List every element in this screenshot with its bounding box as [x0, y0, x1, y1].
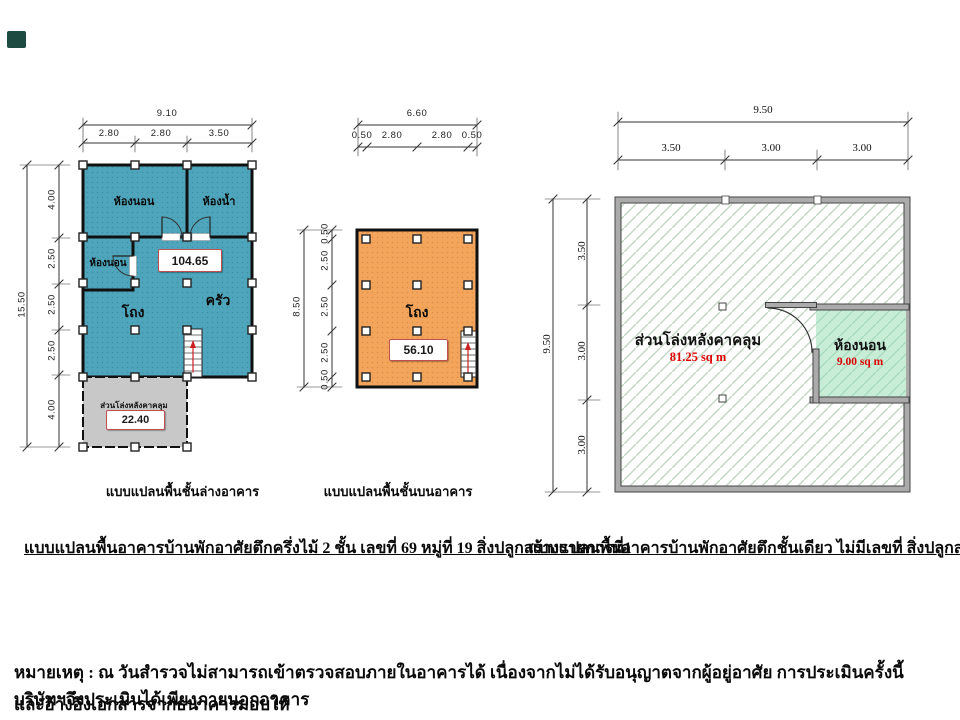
room-label-bathroom: ห้องน้ำ — [187, 192, 251, 210]
room-label-bedroom: ห้องนอน — [94, 192, 174, 210]
room-label-kitchen: ครัว — [188, 290, 248, 312]
caption-building-1: แบบแปลนพื้นอาคารบ้านพักอาศัยตึกครึ่งไม้ … — [24, 536, 494, 561]
dim-label: 3.00 — [576, 423, 588, 467]
dim-label: 3.50 — [195, 128, 243, 139]
dimension-line — [614, 112, 912, 170]
dim-label: 0.50 — [320, 358, 331, 402]
column-marker — [722, 196, 729, 204]
dimension-line — [20, 161, 70, 451]
room-label-bedroom: ห้องนอน — [78, 256, 138, 271]
dim-label: 8.50 — [292, 285, 303, 329]
stairs-icon — [461, 331, 476, 377]
stairs-icon — [184, 329, 202, 377]
plan-single-storey-drawing — [545, 112, 912, 496]
dim-label: 3.00 — [576, 329, 588, 373]
dim-label: 3.50 — [576, 229, 588, 273]
dim-label: 2.50 — [320, 239, 331, 283]
column-marker — [719, 303, 726, 310]
caption-building-2: แบบแปลนพื้นอาคารบ้านพักอาศัยตึกชั้นเดียว… — [528, 536, 952, 561]
column-marker — [719, 395, 726, 402]
open-area-label: ส่วนโล่งหลังคาคลุม — [598, 328, 798, 352]
dim-label: 2.50 — [47, 283, 58, 327]
dim-label: 2.50 — [47, 329, 58, 373]
room-label-hall: โถง — [103, 302, 163, 324]
bedroom-area-value: 9.00 sq m — [810, 356, 910, 368]
dim-label: 3.00 — [835, 142, 889, 154]
dim-label: 4.00 — [47, 178, 58, 222]
dim-label: 0.50 — [454, 130, 490, 141]
dim-label: 9.10 — [140, 108, 194, 119]
dim-label: 2.80 — [374, 130, 410, 141]
area-badge: 104.65 — [158, 249, 222, 272]
dim-label: 2.50 — [47, 237, 58, 281]
floor-plan-document: 9.10 2.80 2.80 3.50 15.50 4.00 2.50 2.50… — [0, 0, 960, 720]
dim-label: 3.00 — [744, 142, 798, 154]
dim-label: 4.00 — [47, 388, 58, 432]
column-marker — [814, 196, 821, 204]
note-line-2: และอ้างอิงเอกสารจากธนาคารมอบให้ — [14, 691, 954, 718]
area-badge: 22.40 — [106, 410, 165, 430]
dim-label: 3.50 — [644, 142, 698, 154]
dim-label: 9.50 — [736, 104, 790, 116]
dim-label: 9.50 — [541, 322, 553, 366]
caption-ground-floor: แบบแปลนพื้นชั้นล่างอาคาร — [90, 481, 275, 502]
room-label-bedroom: ห้องนอน — [810, 335, 910, 357]
dimension-line — [545, 195, 600, 496]
dim-label: 6.60 — [390, 108, 444, 119]
room-label-hall: โถง — [387, 302, 447, 324]
open-area-value: 81.25 sq m — [598, 350, 798, 365]
dim-label: 15.50 — [17, 283, 28, 327]
dim-label: 2.80 — [85, 128, 133, 139]
caption-upper-floor: แบบแปลนพื้นชั้นบนอาคาร — [312, 481, 484, 502]
dim-label: 2.50 — [320, 285, 331, 329]
area-badge: 56.10 — [389, 339, 448, 361]
dim-label: 2.80 — [137, 128, 185, 139]
